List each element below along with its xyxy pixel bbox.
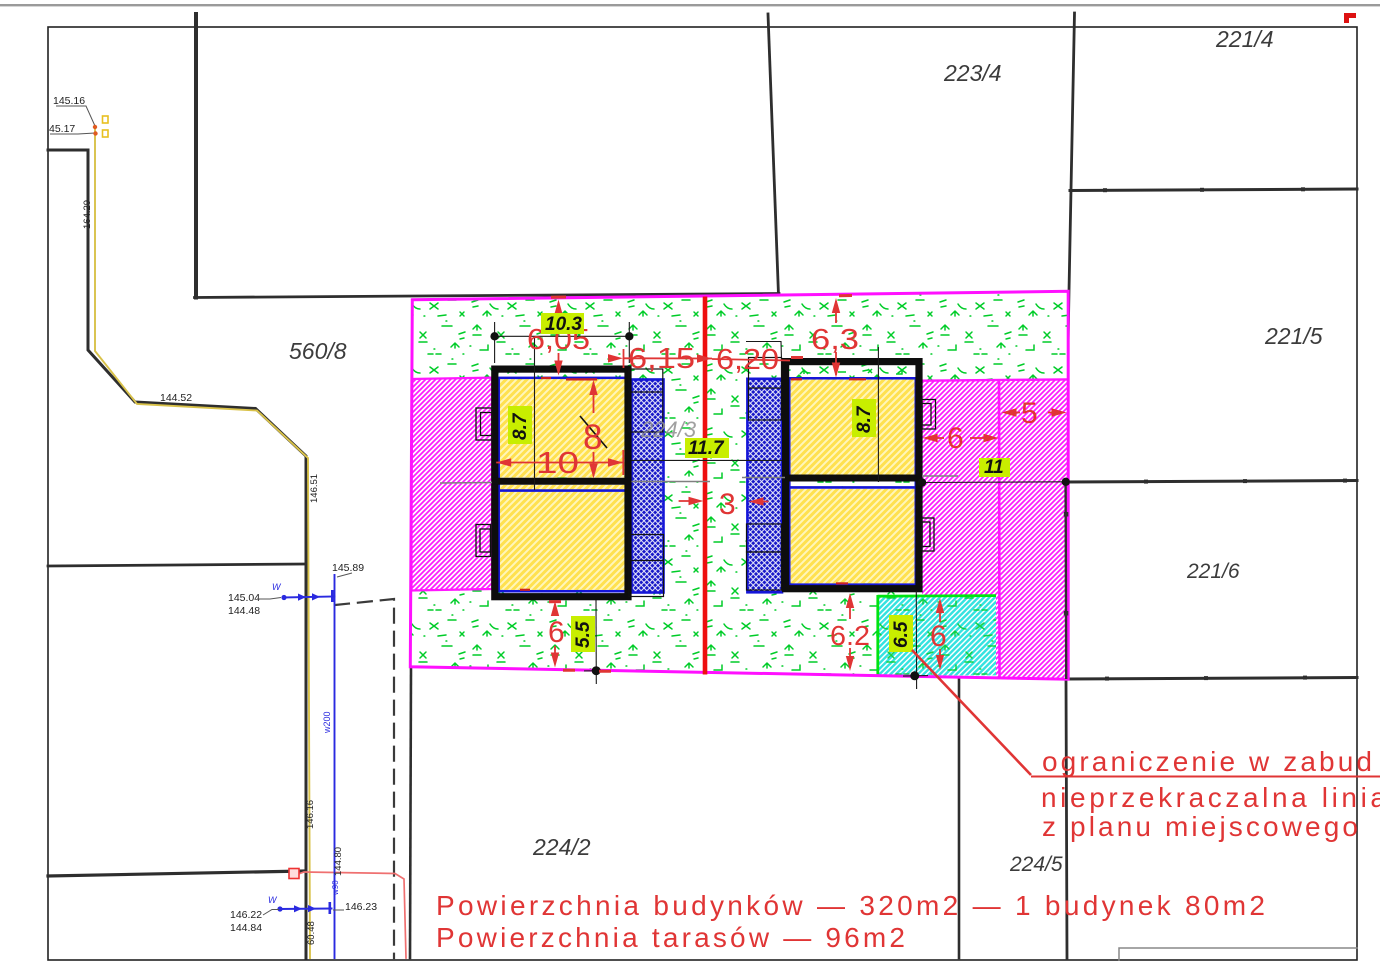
svg-text:145.16: 145.16 xyxy=(53,95,85,107)
svg-text:6.5: 6.5 xyxy=(891,621,912,648)
svg-text:6.2: 6.2 xyxy=(830,620,870,651)
svg-text:144.80: 144.80 xyxy=(333,847,344,876)
svg-text:224/5: 224/5 xyxy=(1009,853,1063,876)
svg-text:Powierzchnia budynków — 320m2: Powierzchnia budynków — 320m2 — 1 budyne… xyxy=(436,890,1265,921)
svg-text:145.04: 145.04 xyxy=(228,592,260,604)
svg-text:144.48: 144.48 xyxy=(228,605,260,617)
svg-text:145.89: 145.89 xyxy=(332,562,364,574)
svg-text:146.51: 146.51 xyxy=(309,474,320,503)
svg-text:8.7: 8.7 xyxy=(510,412,531,440)
svg-text:6,15: 6,15 xyxy=(628,343,695,375)
svg-text:6: 6 xyxy=(930,620,947,653)
svg-text:224/2: 224/2 xyxy=(532,834,591,860)
svg-text:45.17: 45.17 xyxy=(49,123,75,135)
svg-text:z planu miejscowego: z planu miejscowego xyxy=(1042,811,1358,842)
svg-text:3: 3 xyxy=(719,488,736,521)
svg-text:6,20: 6,20 xyxy=(716,344,779,376)
svg-text:164.29: 164.29 xyxy=(82,200,93,229)
svg-text:146.23: 146.23 xyxy=(345,901,377,913)
svg-text:144.84: 144.84 xyxy=(230,922,262,934)
svg-text:146.16: 146.16 xyxy=(305,800,316,829)
svg-text:11.7: 11.7 xyxy=(688,438,725,459)
svg-text:ograniczenie w zabud: ograniczenie w zabud xyxy=(1042,746,1372,777)
svg-text:60.48: 60.48 xyxy=(306,921,317,945)
svg-text:5.5: 5.5 xyxy=(573,621,594,648)
svg-text:6,3: 6,3 xyxy=(811,324,859,356)
svg-text:221/5: 221/5 xyxy=(1264,323,1323,349)
svg-text:6: 6 xyxy=(548,616,565,649)
svg-text:5: 5 xyxy=(1021,397,1038,430)
svg-text:560/8: 560/8 xyxy=(289,338,347,364)
svg-text:8.7: 8.7 xyxy=(854,405,875,433)
svg-text:8: 8 xyxy=(583,418,602,457)
svg-text:w200: w200 xyxy=(322,711,332,734)
svg-text:146.22: 146.22 xyxy=(230,909,262,921)
svg-text:221/6: 221/6 xyxy=(1186,560,1240,583)
svg-text:221/4: 221/4 xyxy=(1215,26,1274,52)
svg-text:11: 11 xyxy=(984,457,1004,478)
svg-text:144.52: 144.52 xyxy=(160,392,192,404)
svg-text:6: 6 xyxy=(947,422,964,455)
svg-text:10.3: 10.3 xyxy=(545,314,582,335)
svg-text:10: 10 xyxy=(536,445,579,480)
svg-text:223/4: 223/4 xyxy=(943,60,1002,86)
svg-text:w90: w90 xyxy=(331,880,340,896)
